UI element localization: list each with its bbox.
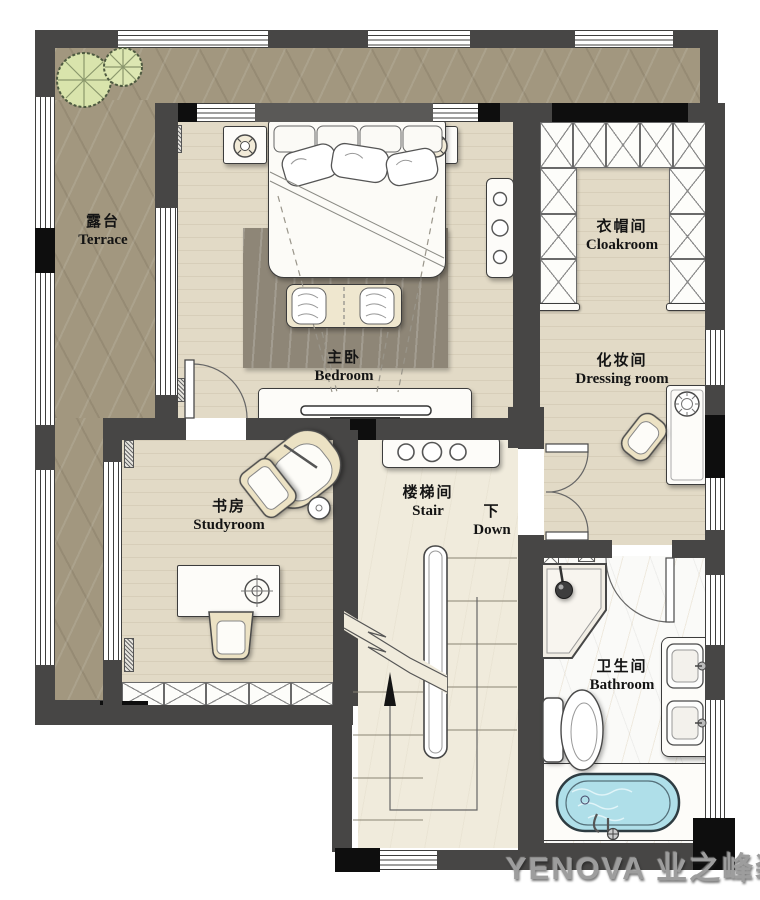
wall-segment [705,530,725,575]
window [575,30,673,48]
window [155,208,178,395]
window [705,330,725,385]
room-label-cloakroom: 衣帽间 Cloakroom [586,218,658,254]
stair-hall-console [382,436,500,468]
room-label-study: 书房 Studyroom [193,498,264,534]
wall-segment-black [552,103,688,122]
study-label-zh: 书房 [193,498,264,516]
wall-segment [155,103,178,208]
wall-segment [332,725,352,852]
terrace-label-zh: 露台 [78,213,127,231]
room-label-terrace: 露台 Terrace [78,213,127,249]
cloakroom-label-en: Cloakroom [586,236,658,254]
double-door-opening [518,448,544,537]
wall-segment [268,30,368,48]
wall-segment [700,48,718,103]
bathroom-label-zh: 卫生间 [590,658,655,676]
wall-segment [672,540,706,558]
wall-segment [518,535,544,850]
stair-down-label: 下 Down [473,503,511,539]
window [197,103,255,122]
window [35,97,55,228]
wall-segment [705,103,725,330]
terrace-label-en: Terrace [78,231,127,249]
wall-segment-black [335,848,380,872]
study-wardrobe [122,682,333,706]
wall-segment [673,30,718,48]
terrace-floor-lower [55,418,103,703]
window [368,30,470,48]
window [705,575,725,645]
stair-down-zh: 下 [473,503,511,521]
wall-segment [705,385,725,415]
stair-label-zh: 楼梯间 [402,484,453,502]
room-label-bathroom: 卫生间 Bathroom [590,658,655,694]
bathtub-platform [541,763,707,841]
cloakroom-wardrobe-right [669,168,706,305]
wall-segment [705,645,725,702]
bed-end-bench [286,284,402,328]
wall-segment [103,430,122,462]
dressing-table [666,385,708,485]
wall-segment [333,430,358,706]
wall-segment [500,103,530,122]
wall-segment-black [478,103,502,122]
yenova-watermark: YENOVA 业之峰装 [506,843,760,888]
wall-segment [100,705,353,725]
window [118,30,268,48]
window [380,850,437,870]
study-desk [177,565,280,617]
dressing-label-en: Dressing room [575,370,668,388]
terrace-floor-left [55,100,155,418]
room-label-bedroom: 主卧 Bedroom [315,349,374,385]
bedroom-label-zh: 主卧 [315,349,374,367]
wall-segment-black [35,228,55,273]
curtain-symbol [124,440,134,468]
cloakroom-label-zh: 衣帽间 [586,218,658,236]
study-label-en: Studyroom [193,516,264,534]
nightstand-left [223,126,267,164]
dressing-label-zh: 化妆间 [575,352,668,370]
bed [268,120,446,278]
wall-segment-black [705,415,725,478]
bedroom-label-en: Bedroom [315,367,374,385]
terrace-floor-top [55,48,705,103]
window [35,273,55,425]
floor-plan: 露台 Terrace 主卧 Bedroom 衣帽间 Cloakroom 化妆间 … [0,0,760,900]
wall-segment [35,700,105,725]
cloakroom-wardrobe-top [540,122,706,168]
door-opening [186,418,246,440]
wall-segment [103,660,122,706]
wall-segment [470,30,575,48]
stair-label-en: Stair [402,502,453,520]
curtain-symbol [124,638,134,672]
window [103,462,122,660]
wall-segment [246,418,510,440]
wall-segment [542,540,612,558]
room-label-stair: 楼梯间 Stair [402,484,453,520]
stair-down-en: Down [473,521,511,539]
cloakroom-wardrobe-left [540,168,577,305]
wall-segment [155,395,178,419]
bed-headboard-wall [255,103,433,122]
wall-segment [35,30,55,97]
room-label-dressing: 化妆间 Dressing room [575,352,668,388]
wall-segment [35,425,55,470]
bathroom-vanity-counter [661,637,708,757]
bathroom-label-en: Bathroom [590,676,655,694]
window [705,478,725,530]
bedroom-console [486,178,514,278]
window [705,700,725,818]
wall-segment [513,122,540,418]
window [35,470,55,665]
window [433,103,478,122]
